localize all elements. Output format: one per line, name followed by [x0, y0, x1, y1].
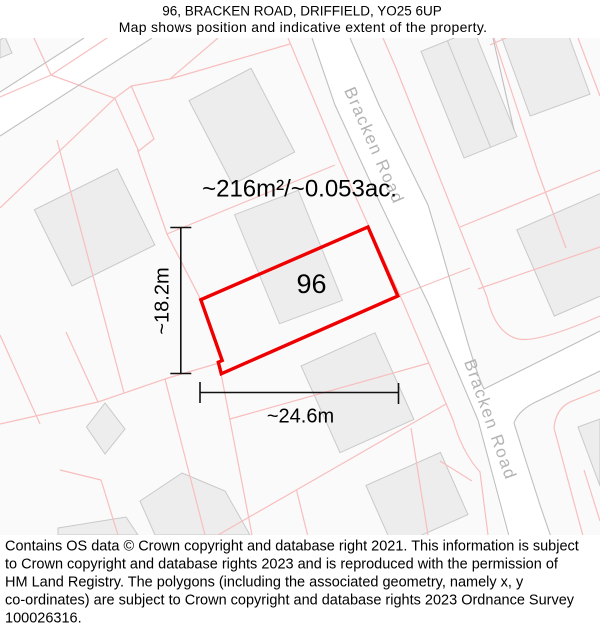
svg-text:to Crown copyright and databas: to Crown copyright and database rights 2… — [5, 557, 559, 573]
svg-text:96: 96 — [296, 269, 326, 299]
svg-text:HM Land Registry. The polygons: HM Land Registry. The polygons (includin… — [5, 575, 524, 591]
svg-text:Contains OS data © Crown copyr: Contains OS data © Crown copyright and d… — [5, 539, 579, 555]
svg-text:Map shows position and indicat: Map shows position and indicative extent… — [119, 19, 488, 35]
svg-text:~24.6m: ~24.6m — [267, 405, 334, 427]
svg-text:~18.2m: ~18.2m — [151, 267, 173, 334]
svg-text:100026316.: 100026316. — [5, 611, 82, 625]
svg-text:96, BRACKEN ROAD, DRIFFIELD, Y: 96, BRACKEN ROAD, DRIFFIELD, YO25 6UP — [162, 4, 442, 19]
svg-text:co-ordinates) are subject to C: co-ordinates) are subject to Crown copyr… — [5, 593, 575, 609]
svg-text:~216m²/~0.053ac.: ~216m²/~0.053ac. — [202, 175, 397, 202]
